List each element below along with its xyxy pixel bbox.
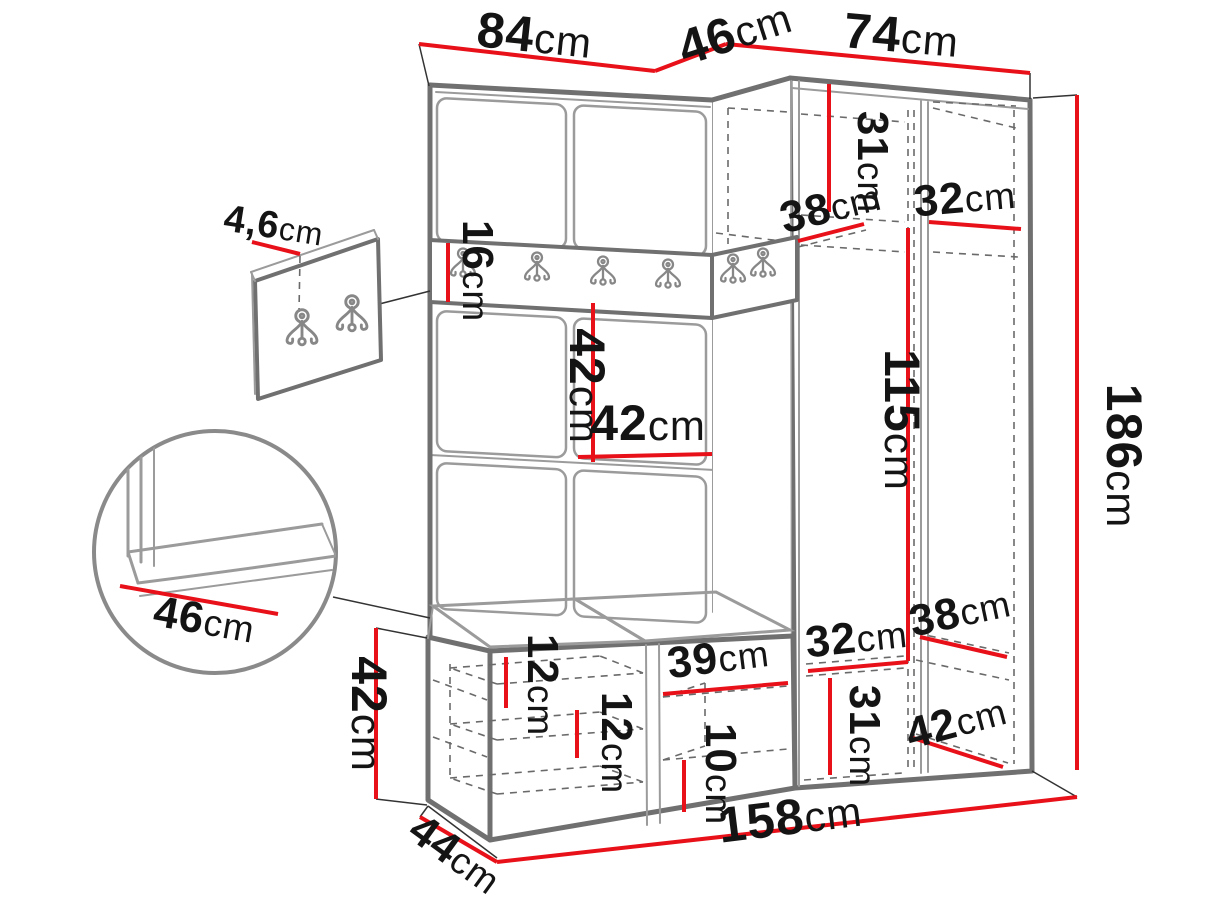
wall-panel-detail: [251, 230, 381, 399]
upholstered-panel: [437, 311, 566, 458]
dim-bench-gap-lower: 12cm: [592, 692, 641, 794]
dim-hanging-height: 115cm: [874, 349, 930, 491]
dim-bench-height: 42cm: [341, 656, 397, 772]
dim-top-width-left: 84cm: [474, 1, 595, 69]
dim-rail-height: 16cm: [453, 220, 502, 322]
dim-panel-thickness: 4,6cm: [221, 198, 327, 255]
pointer-line-bench: [333, 597, 430, 618]
furniture-dimension-diagram: 84cm 46cm 74cm 4,6cm 16cm 31cm 38cm 32cm…: [0, 0, 1214, 911]
dim-total-height: 186cm: [1096, 384, 1152, 528]
diagram-canvas: 84cm 46cm 74cm 4,6cm 16cm 31cm 38cm 32cm…: [0, 0, 1214, 911]
dim-top-width-corner: 46cm: [671, 0, 798, 76]
dim-lower-shelf-height: 31cm: [840, 685, 889, 787]
upholstered-panel: [437, 463, 566, 616]
dim-top-width-right: 74cm: [841, 2, 961, 68]
dim-bench-gap-upper: 12cm: [518, 634, 567, 736]
upholstered-panel: [574, 105, 706, 256]
dim-panel-width: 42cm: [590, 395, 706, 451]
upholstered-panel: [574, 470, 706, 623]
